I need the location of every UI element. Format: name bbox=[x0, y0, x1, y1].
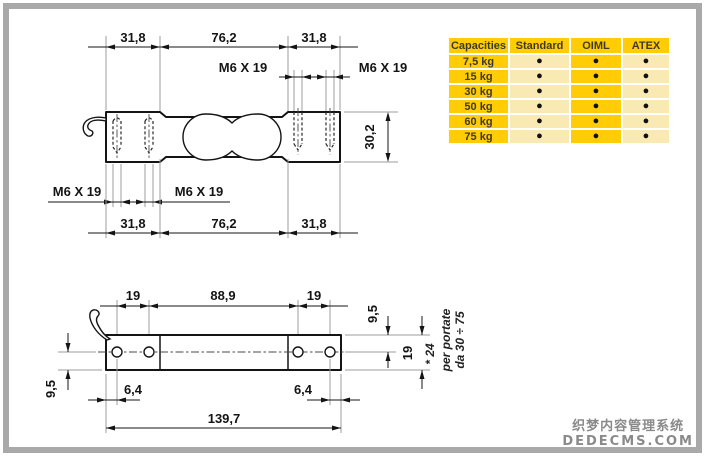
capacity-value: 50 kg bbox=[449, 100, 508, 113]
dimension-label: 88,9 bbox=[210, 288, 235, 303]
dimension-label: 6,4 bbox=[294, 382, 313, 397]
dimension-label: 139,7 bbox=[208, 411, 241, 426]
header-standard: Standard bbox=[510, 38, 569, 53]
oiml-dot: ● bbox=[571, 55, 621, 68]
cable-top-view bbox=[83, 117, 106, 136]
thread-label: M6 X 19 bbox=[219, 60, 267, 75]
capacity-value: 75 kg bbox=[449, 130, 508, 143]
dimension-label: 19 bbox=[400, 346, 415, 360]
alt-height-note: * 24 bbox=[423, 343, 437, 365]
watermark-chinese-text: 织梦内容管理系统 bbox=[562, 419, 694, 434]
capacity-value: 60 kg bbox=[449, 115, 508, 128]
watermark: 织梦内容管理系统 DEDECMS.COM bbox=[562, 419, 694, 449]
header-capacities: Capacities bbox=[449, 38, 508, 53]
load-cell-body-side-view bbox=[106, 335, 341, 370]
dimension-label: 19 bbox=[126, 288, 140, 303]
dimension-label: 9,5 bbox=[365, 305, 380, 323]
dimension-label: 6,4 bbox=[124, 382, 143, 397]
standard-dot: ● bbox=[510, 115, 569, 128]
mounting-hole bbox=[112, 347, 122, 357]
standard-dot: ● bbox=[510, 85, 569, 98]
oiml-dot: ● bbox=[571, 70, 621, 83]
capacity-value: 7,5 kg bbox=[449, 55, 508, 68]
table-header-row: Capacities Standard OIML ATEX bbox=[449, 38, 669, 53]
atex-dot: ● bbox=[623, 55, 669, 68]
standard-dot: ● bbox=[510, 130, 569, 143]
dimension-label: 31,8 bbox=[301, 216, 326, 231]
capacity-note-line1: per portate bbox=[439, 308, 453, 372]
standard-dot: ● bbox=[510, 70, 569, 83]
atex-dot: ● bbox=[623, 115, 669, 128]
capacity-value: 15 kg bbox=[449, 70, 508, 83]
thread-label: M6 X 19 bbox=[53, 184, 101, 199]
table-row: 30 kg ● ● ● bbox=[449, 85, 669, 98]
dimension-label: 31,8 bbox=[120, 30, 145, 45]
dimension-label: 9,5 bbox=[43, 380, 58, 398]
dimension-label: 76,2 bbox=[211, 30, 236, 45]
datasheet-page: 31,8 76,2 31,8 M6 X 19 M6 X 19 bbox=[0, 0, 705, 456]
atex-dot: ● bbox=[623, 85, 669, 98]
table-row: 75 kg ● ● ● bbox=[449, 130, 669, 143]
dimension-label: 19 bbox=[307, 288, 321, 303]
oiml-dot: ● bbox=[571, 85, 621, 98]
atex-dot: ● bbox=[623, 70, 669, 83]
oiml-dot: ● bbox=[571, 130, 621, 143]
dimension-label: 30,2 bbox=[362, 124, 377, 149]
table-row: 60 kg ● ● ● bbox=[449, 115, 669, 128]
standard-dot: ● bbox=[510, 55, 569, 68]
oiml-dot: ● bbox=[571, 115, 621, 128]
atex-dot: ● bbox=[623, 130, 669, 143]
thread-label: M6 X 19 bbox=[359, 60, 407, 75]
header-atex: ATEX bbox=[623, 38, 669, 53]
standard-dot: ● bbox=[510, 100, 569, 113]
table-row: 7,5 kg ● ● ● bbox=[449, 55, 669, 68]
capacities-table: Capacities Standard OIML ATEX 7,5 kg ● ●… bbox=[447, 36, 671, 145]
header-oiml: OIML bbox=[571, 38, 621, 53]
top-view: 31,8 76,2 31,8 M6 X 19 M6 X 19 bbox=[48, 30, 407, 238]
dimension-label: 31,8 bbox=[301, 30, 326, 45]
capacity-value: 30 kg bbox=[449, 85, 508, 98]
side-view: 19 88,9 19 9,5 6,4 bbox=[43, 288, 467, 433]
table-row: 50 kg ● ● ● bbox=[449, 100, 669, 113]
oiml-dot: ● bbox=[571, 100, 621, 113]
dimension-label: 31,8 bbox=[120, 216, 145, 231]
dimension-label: 76,2 bbox=[211, 216, 236, 231]
capacity-note-line2: da 30 ÷ 75 bbox=[453, 311, 467, 369]
mounting-hole bbox=[293, 347, 303, 357]
mounting-hole bbox=[325, 347, 335, 357]
thread-label: M6 X 19 bbox=[175, 184, 223, 199]
watermark-dedecms-text: DEDECMS.COM bbox=[562, 434, 694, 449]
atex-dot: ● bbox=[623, 100, 669, 113]
mounting-hole bbox=[144, 347, 154, 357]
table-row: 15 kg ● ● ● bbox=[449, 70, 669, 83]
